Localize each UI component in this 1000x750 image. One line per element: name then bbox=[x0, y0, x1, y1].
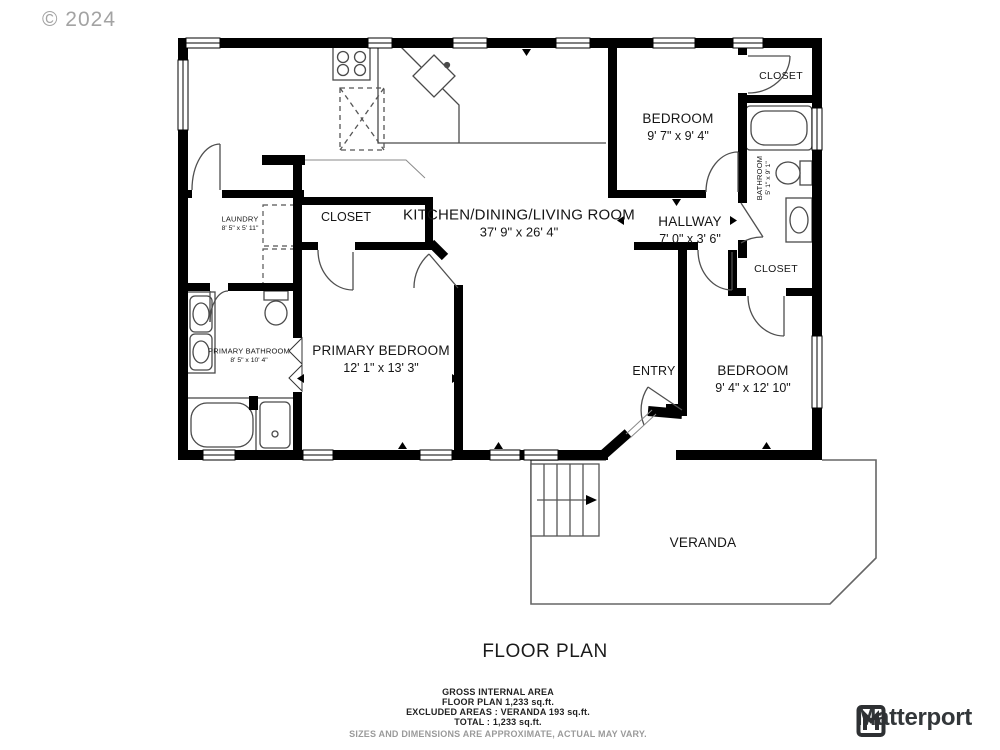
closet-door-right-mid bbox=[748, 296, 784, 336]
room-label-closet-top-right: CLOSET bbox=[759, 70, 803, 82]
bathroom-dims: 5' 1" x 9' 1" bbox=[764, 156, 772, 200]
room-label-entry: ENTRY bbox=[632, 364, 675, 378]
toilet-icon bbox=[264, 291, 288, 325]
shower-icon bbox=[256, 398, 294, 452]
room-label-closet-mid-left: CLOSET bbox=[321, 210, 371, 224]
room-label-bedroom1: BEDROOM bbox=[642, 111, 713, 127]
room-dims-primary-bathroom: 8' 5" x 10' 4" bbox=[230, 357, 267, 365]
bathtub-icon bbox=[186, 398, 258, 452]
bifold-door-icon bbox=[289, 338, 302, 391]
room-dims-hallway: 7' 0" x 3' 6" bbox=[659, 232, 721, 246]
room-label-primary-bedroom: PRIMARY BEDROOM bbox=[312, 343, 450, 359]
footer-gross-internal-area: GROSS INTERNAL AREA bbox=[442, 687, 554, 697]
room-label-closet-right-mid: CLOSET bbox=[754, 263, 798, 275]
double-vanity-icon bbox=[187, 292, 215, 373]
kitchen-counter bbox=[378, 48, 606, 143]
bathroom-name: BATHROOM bbox=[756, 156, 765, 200]
room-dims-bedroom2: 9' 4" x 12' 10" bbox=[715, 381, 791, 395]
room-dims-laundry: 8' 5" x 5' 11" bbox=[222, 225, 259, 233]
bathtub-icon bbox=[746, 106, 812, 150]
footer-disclaimer: SIZES AND DIMENSIONS ARE APPROXIMATE, AC… bbox=[349, 729, 647, 739]
bedroom1-door bbox=[706, 152, 738, 192]
primary-bathroom-fixtures bbox=[186, 291, 294, 452]
room-label-laundry: LAUNDRY bbox=[221, 216, 258, 225]
closet-door-mid-left bbox=[318, 250, 353, 290]
primary-bedroom-door bbox=[414, 254, 458, 288]
room-label-bathroom: BATHROOM 5' 1" x 9' 1" bbox=[756, 156, 772, 200]
stairs bbox=[531, 464, 599, 536]
floor-boundary-line bbox=[304, 160, 425, 178]
bathroom-vanity-icon bbox=[786, 198, 812, 242]
room-label-veranda: VERANDA bbox=[670, 535, 737, 551]
stove-icon bbox=[333, 47, 370, 80]
matterport-logo: Matterport bbox=[856, 704, 972, 732]
floor-plan-drawing bbox=[0, 0, 1000, 750]
matterport-logo-icon bbox=[856, 704, 886, 738]
washer-dryer-icon bbox=[263, 205, 295, 290]
laundry-door bbox=[192, 144, 220, 190]
footer-excluded-areas: EXCLUDED AREAS : VERANDA 193 sq.ft. bbox=[406, 707, 590, 717]
floor-plan-page: © 2024 bbox=[0, 0, 1000, 750]
toilet-icon bbox=[776, 161, 812, 185]
plan-title: FLOOR PLAN bbox=[482, 641, 607, 663]
room-label-hallway: HALLWAY bbox=[658, 214, 721, 230]
bedroom2-door bbox=[698, 250, 732, 290]
room-dims-bedroom1: 9' 7" x 9' 4" bbox=[647, 129, 709, 143]
kitchen-fixtures bbox=[304, 47, 606, 178]
kitchen-sink-icon bbox=[413, 55, 455, 97]
footer-total-area: TOTAL : 1,233 sq.ft. bbox=[454, 717, 542, 727]
footer-floor-plan-area: FLOOR PLAN 1,233 sq.ft. bbox=[442, 697, 554, 707]
room-dims-kitchen-dining-living: 37' 9" x 26' 4" bbox=[480, 226, 559, 241]
room-dims-primary-bedroom: 12' 1" x 13' 3" bbox=[343, 361, 419, 375]
room-label-bedroom2: BEDROOM bbox=[717, 363, 788, 379]
bathroom-door bbox=[741, 203, 763, 243]
room-label-kitchen-dining-living: KITCHEN/DINING/LIVING ROOM bbox=[403, 206, 635, 223]
room-label-primary-bathroom: PRIMARY BATHROOM bbox=[208, 348, 290, 357]
